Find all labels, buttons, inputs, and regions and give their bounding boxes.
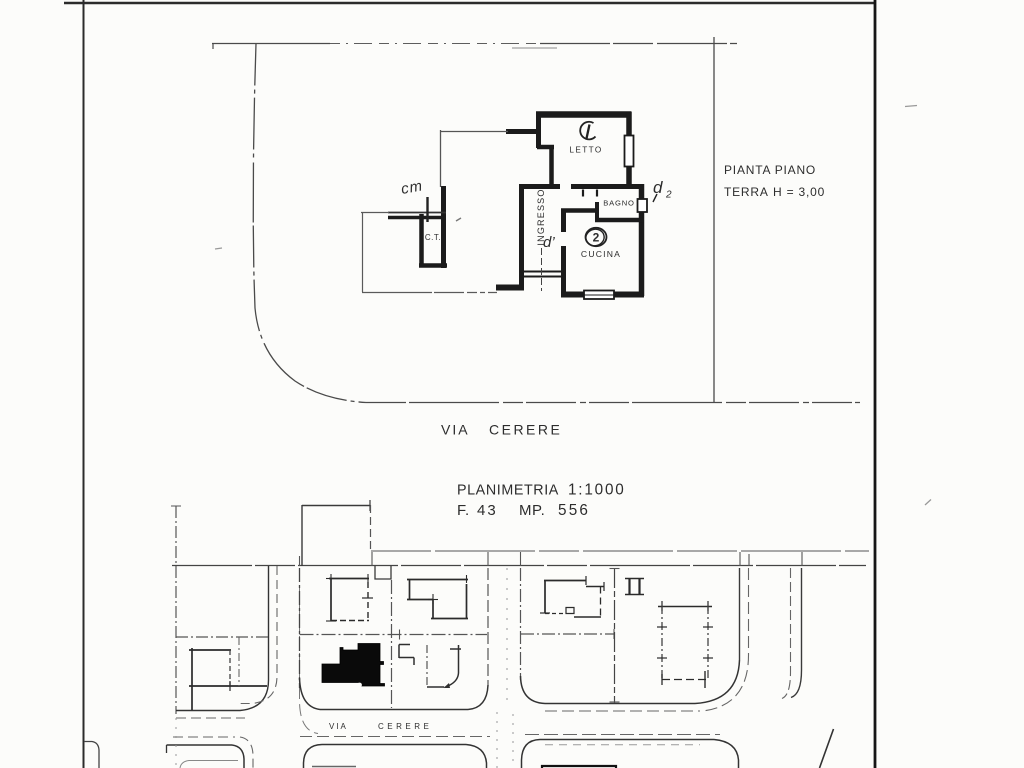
svg-text:1:1000: 1:1000: [568, 482, 626, 499]
svg-text:d: d: [653, 178, 663, 197]
svg-text:2: 2: [593, 231, 600, 245]
svg-text:43: 43: [477, 502, 498, 519]
svg-text:PIANTA PIANO: PIANTA PIANO: [724, 163, 816, 177]
svg-text:TERRA: TERRA: [724, 185, 769, 199]
svg-text:d’: d’: [543, 234, 555, 251]
svg-text:CUCINA: CUCINA: [581, 249, 621, 259]
svg-text:VIA: VIA: [329, 722, 348, 731]
svg-text:BAGNO: BAGNO: [603, 199, 634, 208]
svg-text:556: 556: [558, 502, 590, 519]
svg-text:2: 2: [665, 190, 672, 201]
svg-text:CERERE: CERERE: [378, 722, 432, 731]
svg-text:LETTO: LETTO: [569, 146, 602, 155]
svg-text:CERERE: CERERE: [489, 422, 562, 438]
svg-text:MP.: MP.: [519, 502, 545, 519]
svg-text:F.: F.: [457, 502, 470, 519]
svg-text:H = 3,00: H = 3,00: [773, 185, 825, 199]
svg-text:VIA: VIA: [441, 422, 470, 438]
svg-text:C.T.: C.T.: [425, 233, 441, 242]
svg-text:PLANIMETRIA: PLANIMETRIA: [457, 483, 559, 499]
